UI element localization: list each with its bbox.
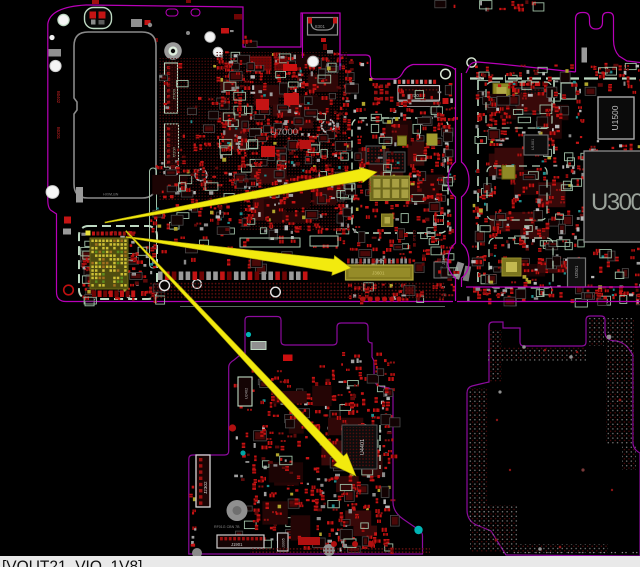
svg-text:J1901: J1901 xyxy=(231,542,243,547)
svg-text:J8305: J8305 xyxy=(441,253,446,265)
svg-text:HXWLBN: HXWLBN xyxy=(103,193,119,197)
svg-text:J3005: J3005 xyxy=(282,538,286,548)
svg-text:U1500: U1500 xyxy=(610,105,620,130)
svg-text:B0201: B0201 xyxy=(56,127,61,140)
svg-text:C1503: C1503 xyxy=(368,181,372,192)
svg-text:U3000: U3000 xyxy=(591,189,640,216)
svg-text:8301: 8301 xyxy=(315,24,326,29)
svg-text:U4401: U4401 xyxy=(360,439,366,455)
svg-text:B0402: B0402 xyxy=(56,91,61,104)
svg-text:[VOUT21_VIO_1V8]: [VOUT21_VIO_1V8] xyxy=(2,559,142,567)
svg-text:C1510: C1510 xyxy=(412,230,416,241)
svg-text:J3601: J3601 xyxy=(372,271,385,276)
svg-text:U2501: U2501 xyxy=(574,265,579,278)
svg-text:U7000: U7000 xyxy=(270,127,298,138)
svg-text:J2302: J2302 xyxy=(203,481,208,494)
svg-text:U1001: U1001 xyxy=(531,139,535,150)
svg-text:J8303: J8303 xyxy=(441,156,446,168)
svg-text:U2402: U2402 xyxy=(245,388,249,399)
svg-text:RF01G CBN 7B: RF01G CBN 7B xyxy=(214,525,240,529)
